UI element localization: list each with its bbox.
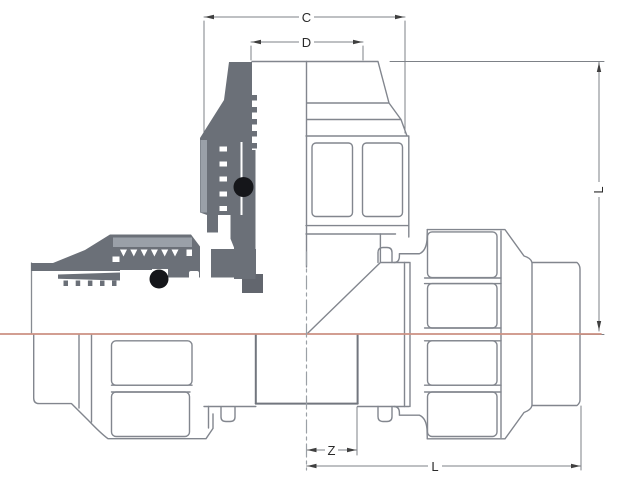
- svg-text:L: L: [431, 459, 438, 474]
- svg-text:D: D: [302, 35, 311, 50]
- svg-text:C: C: [302, 10, 311, 25]
- svg-text:L: L: [591, 186, 606, 193]
- svg-text:Z: Z: [328, 443, 336, 458]
